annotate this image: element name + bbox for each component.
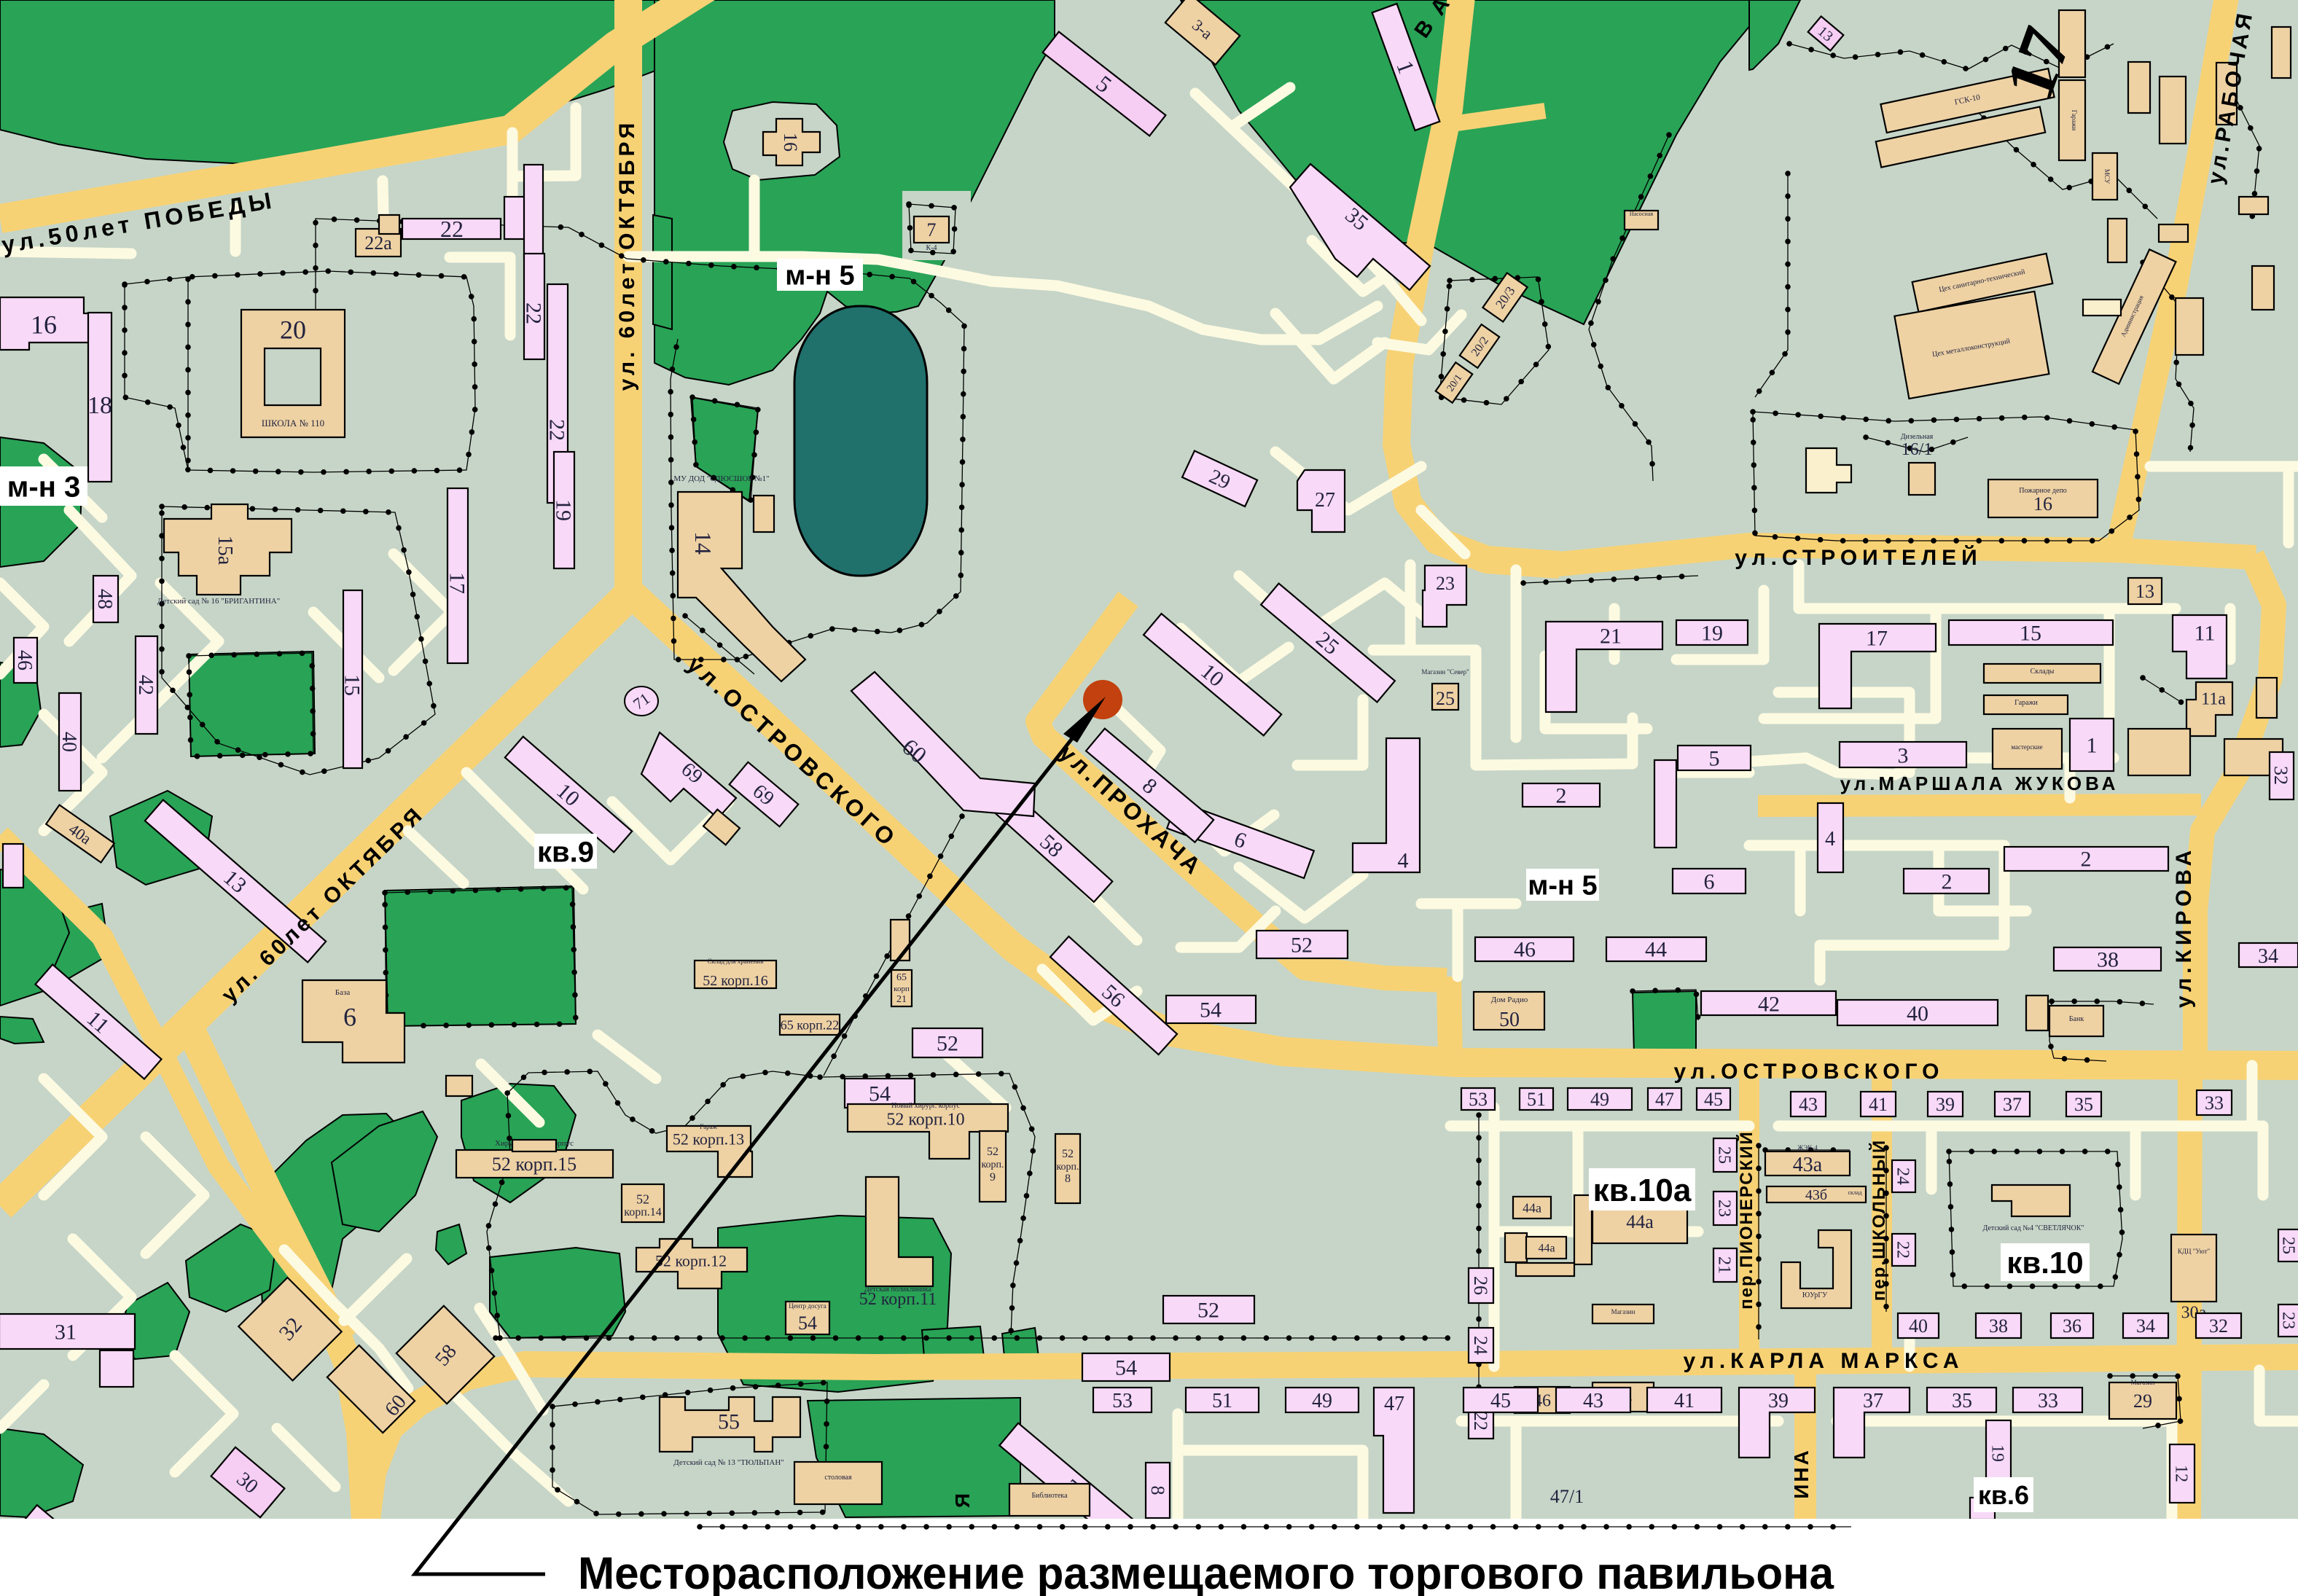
svg-text:47/1: 47/1 [1550,1486,1584,1507]
svg-text:26: 26 [1470,1276,1491,1295]
svg-text:22: 22 [440,216,464,242]
svg-text:25: 25 [1436,688,1455,709]
svg-text:19: 19 [1988,1444,2007,1462]
svg-text:База: База [335,988,351,997]
svg-text:5: 5 [1709,747,1720,771]
svg-text:Склады: Склады [2031,668,2055,676]
svg-text:Новый хирург. корпус: Новый хирург. корпус [891,1102,960,1110]
svg-text:Центр досуга: Центр досуга [789,1302,826,1310]
svg-text:46: 46 [13,650,36,670]
svg-text:34: 34 [2136,1315,2155,1337]
svg-text:Дизельная: Дизельная [1901,433,1934,441]
svg-text:Детский сад № 13 "ТЮЛЬПАН": Детский сад № 13 "ТЮЛЬПАН" [673,1458,784,1467]
svg-text:11а: 11а [2201,689,2226,708]
svg-text:Дом Радио: Дом Радио [1491,995,1528,1004]
svg-text:39: 39 [1936,1094,1955,1115]
svg-text:2: 2 [2081,848,2092,872]
svg-text:54: 54 [869,1082,891,1106]
svg-text:Магазин "Север": Магазин "Север" [1421,668,1469,676]
svg-text:м-н 3: м-н 3 [7,471,80,503]
svg-text:24: 24 [1893,1167,1912,1185]
svg-text:37: 37 [1863,1390,1883,1412]
svg-text:33: 33 [2205,1092,2224,1114]
svg-text:Склад для хранения: Склад для хранения [708,958,764,965]
svg-text:45: 45 [1704,1089,1723,1110]
svg-text:65: 65 [896,972,907,983]
svg-text:49: 49 [1590,1089,1609,1110]
svg-text:15а: 15а [214,536,236,566]
svg-text:Детская поликлиника: Детская поликлиника [864,1286,932,1294]
svg-text:Гаражи: Гаражи [2014,699,2038,707]
svg-text:41: 41 [1869,1094,1888,1115]
svg-text:44а: 44а [1523,1200,1541,1215]
svg-text:кв.6: кв.6 [1978,1480,2029,1510]
svg-text:Библиотека: Библиотека [1031,1492,1068,1500]
svg-text:52 корп.15: 52 корп.15 [492,1154,577,1175]
svg-text:17: 17 [1866,627,1888,651]
svg-text:38: 38 [1989,1315,2008,1337]
svg-text:25: 25 [1715,1146,1734,1164]
svg-text:43: 43 [1799,1094,1818,1115]
svg-text:16: 16 [2033,493,2052,515]
svg-text:кв.9: кв.9 [537,836,594,868]
svg-text:Магазин: Магазин [2131,1379,2155,1386]
svg-text:52: 52 [1062,1148,1074,1160]
svg-text:кв.10а: кв.10а [1593,1173,1692,1208]
svg-text:21: 21 [896,994,907,1005]
svg-text:45: 45 [1490,1390,1511,1412]
svg-text:52: 52 [1291,934,1313,958]
svg-text:37: 37 [2003,1094,2022,1115]
svg-text:19: 19 [552,499,576,521]
svg-text:Магазин: Магазин [1611,1308,1635,1315]
svg-text:48: 48 [93,589,116,609]
svg-text:ул.КАРЛА МАРКСА: ул.КАРЛА МАРКСА [1684,1349,1964,1373]
svg-text:52: 52 [937,1032,958,1056]
svg-text:кв.10: кв.10 [2006,1245,2083,1280]
svg-text:2: 2 [1942,870,1953,894]
svg-text:36: 36 [2063,1315,2082,1337]
svg-text:52: 52 [1197,1299,1219,1323]
svg-text:ШКОЛА № 110: ШКОЛА № 110 [262,418,324,429]
svg-text:МСУ: МСУ [2103,169,2111,184]
svg-text:16/1: 16/1 [1902,440,1933,459]
svg-text:ул.ОСТРОВСКОГО: ул.ОСТРОВСКОГО [1674,1060,1945,1084]
svg-text:К-4: К-4 [926,244,937,252]
svg-text:44а: 44а [1538,1243,1555,1255]
svg-text:35: 35 [2074,1094,2093,1115]
svg-text:ЮУрГУ: ЮУрГУ [1802,1291,1828,1299]
svg-text:22: 22 [1893,1241,1912,1259]
svg-text:склад: склад [1848,1189,1861,1196]
svg-text:31: 31 [55,1321,77,1345]
svg-text:52: 52 [636,1192,649,1206]
svg-text:27: 27 [1315,489,1335,512]
svg-text:22: 22 [522,302,546,324]
svg-text:65 корп.22: 65 корп.22 [781,1017,839,1032]
svg-text:столовая: столовая [824,1474,852,1482]
svg-text:54: 54 [1115,1356,1137,1380]
svg-text:11: 11 [2195,622,2216,646]
svg-text:38: 38 [2097,948,2119,972]
svg-text:КДЦ "Уют": КДЦ "Уют" [2178,1248,2211,1255]
svg-text:19: 19 [1701,622,1723,646]
svg-text:4: 4 [1825,828,1835,850]
svg-text:52 корп.10: 52 корп.10 [886,1110,964,1129]
svg-text:23: 23 [1715,1200,1734,1217]
svg-text:40: 40 [1907,1002,1928,1026]
svg-text:51: 51 [1212,1390,1232,1412]
svg-text:3: 3 [1898,744,1909,768]
svg-text:14: 14 [690,531,716,555]
svg-text:43а: 43а [1793,1154,1823,1176]
svg-text:пер.ПИОНЕРСКИЙ: пер.ПИОНЕРСКИЙ [1736,1130,1756,1310]
svg-text:МУ ДОД "СДЮСШОР №1": МУ ДОД "СДЮСШОР №1" [673,474,769,483]
svg-text:м-н 5: м-н 5 [1528,871,1597,901]
svg-text:7: 7 [927,219,937,240]
svg-text:54: 54 [1200,998,1222,1022]
svg-text:ул.КИРОВА: ул.КИРОВА [2172,846,2196,1008]
svg-text:42: 42 [1758,993,1780,1017]
svg-text:Детский сад №4 "СВЕТЛЯЧОК": Детский сад №4 "СВЕТЛЯЧОК" [1982,1224,2084,1232]
svg-text:2: 2 [1556,784,1567,808]
svg-text:20: 20 [280,316,306,345]
svg-text:33: 33 [2038,1390,2058,1412]
svg-text:пер.ШКОЛЬНЫЙ: пер.ШКОЛЬНЫЙ [1869,1139,1889,1301]
svg-text:Гаражи: Гаражи [2071,110,2078,131]
svg-text:47: 47 [1655,1089,1674,1110]
svg-text:23: 23 [1436,573,1455,594]
svg-text:ИНА: ИНА [1790,1448,1813,1499]
svg-text:Банк: Банк [2069,1015,2084,1023]
svg-text:Месторасположение размещаемого: Месторасположение размещаемого торгового… [578,1549,1834,1596]
svg-text:22: 22 [545,419,569,441]
svg-text:40: 40 [1909,1315,1928,1337]
svg-text:44а: 44а [1626,1211,1654,1232]
svg-text:53: 53 [1469,1089,1488,1110]
svg-text:15: 15 [2020,622,2041,646]
svg-text:47: 47 [1384,1393,1404,1415]
svg-text:21: 21 [1600,625,1622,649]
svg-text:46: 46 [1514,938,1536,962]
svg-text:43: 43 [1583,1390,1603,1412]
svg-text:22: 22 [1470,1412,1491,1431]
svg-text:49: 49 [1312,1390,1332,1412]
svg-text:Гараж: Гараж [700,1123,717,1130]
svg-text:15: 15 [340,674,364,696]
svg-text:51: 51 [1527,1089,1546,1110]
svg-text:мастерские: мастерские [2011,743,2042,751]
svg-text:23: 23 [2279,1312,2298,1329]
svg-text:16: 16 [780,133,801,152]
svg-text:42: 42 [134,675,157,695]
svg-text:ул.СТРОИТЕЛЕЙ: ул.СТРОИТЕЛЕЙ [1735,545,1982,570]
svg-text:8: 8 [1065,1173,1071,1185]
svg-text:43б: 43б [1805,1187,1827,1203]
svg-text:54: 54 [798,1313,817,1334]
svg-text:1: 1 [2087,734,2098,758]
svg-text:34: 34 [2258,945,2278,968]
svg-text:корп: корп [894,985,910,993]
svg-text:40: 40 [58,732,80,752]
svg-text:Насосная: Насосная [1630,211,1653,217]
svg-text:ул.МАРШАЛА ЖУКОВА: ул.МАРШАЛА ЖУКОВА [1840,772,2119,794]
svg-text:53: 53 [1112,1390,1133,1412]
svg-text:32: 32 [2270,766,2291,785]
svg-text:39: 39 [1768,1390,1789,1412]
svg-text:52 корп.16: 52 корп.16 [703,973,767,989]
svg-text:25: 25 [2279,1237,2298,1254]
svg-text:21: 21 [1715,1256,1734,1274]
svg-text:Я: Я [951,1492,974,1508]
svg-text:Детский сад № 16 "БРИГАНТИНА": Детский сад № 16 "БРИГАНТИНА" [157,597,280,606]
svg-text:6: 6 [1704,870,1715,894]
svg-text:корп.: корп. [1056,1162,1079,1173]
svg-text:9: 9 [990,1171,996,1184]
svg-text:32: 32 [2209,1315,2228,1337]
svg-text:35: 35 [1952,1390,1972,1412]
svg-text:17: 17 [445,572,469,594]
svg-text:корп.14: корп.14 [624,1206,662,1218]
svg-text:50: 50 [1499,1009,1520,1031]
svg-text:8: 8 [1147,1486,1168,1495]
svg-text:ул. 60лет ОКТЯБРЯ: ул. 60лет ОКТЯБРЯ [615,120,639,391]
svg-text:4: 4 [1398,849,1409,873]
svg-text:52 корп.13: 52 корп.13 [673,1130,744,1149]
svg-text:ЖЭК-4: ЖЭК-4 [1797,1144,1818,1151]
svg-text:41: 41 [1674,1390,1695,1412]
svg-text:18: 18 [87,392,112,419]
svg-text:13: 13 [2135,581,2154,602]
svg-text:55: 55 [718,1410,740,1434]
svg-text:6: 6 [343,1003,356,1032]
svg-text:52: 52 [987,1146,998,1158]
svg-text:м-н 5: м-н 5 [785,261,854,292]
svg-text:12: 12 [2172,1465,2191,1482]
svg-text:44: 44 [1645,938,1667,962]
svg-text:24: 24 [1470,1336,1491,1355]
svg-text:22а: 22а [364,232,392,254]
svg-text:16: 16 [31,310,57,340]
svg-text:29: 29 [2133,1390,2152,1412]
svg-text:корп.: корп. [981,1159,1004,1170]
